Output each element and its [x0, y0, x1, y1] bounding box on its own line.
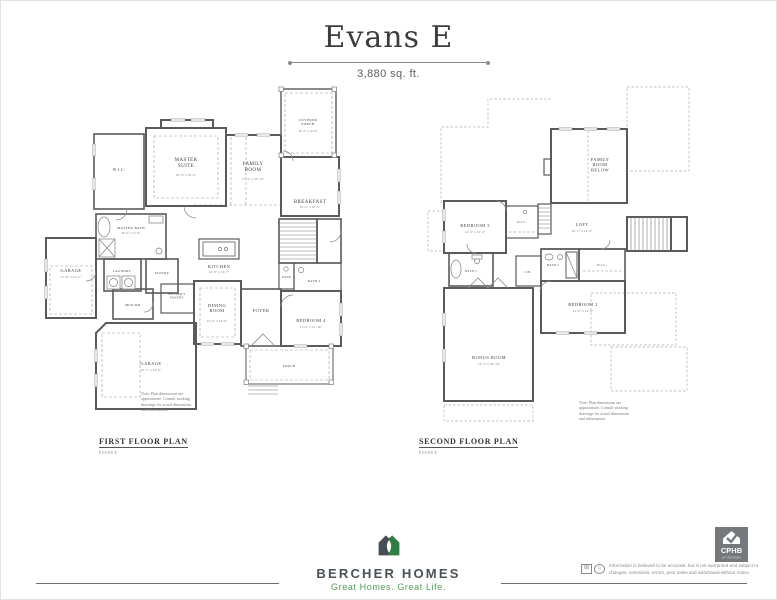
room-label-wic3: W.I.C.: [517, 221, 527, 224]
room-label-master-bath: MASTER BATH: [117, 226, 145, 230]
cphb-label: CPHB: [721, 546, 743, 555]
second-floor-caption: SECOND FLOOR PLAN EVANS E: [419, 431, 518, 455]
room-label-garage-rear: GARAGE: [140, 361, 161, 366]
equal-housing-icon: ⊞: [581, 564, 592, 574]
room-label-bath2: BATH 2: [547, 264, 559, 267]
room-label-bath4: BATH 4: [308, 279, 321, 283]
room-dims-bedroom3: 12'-4" x 12'-0": [465, 230, 486, 234]
cphb-sublabel: OF GEORGIA: [722, 556, 741, 560]
room-dims-bonus-room: 12'-7" x 20'-10": [478, 362, 501, 366]
disclaimer-text: Information is believed to be accurate, …: [609, 563, 767, 576]
second-floor-plan-drawing: FAMILYROOMBELOW BEDROOM 3 12'-4" x 12'-0…: [416, 81, 696, 429]
first-floor-caption-sub: EVANS E: [99, 450, 188, 455]
room-dims-master-suite: 16'-4" x 16'-0": [176, 173, 197, 177]
first-floor-plan-drawing: W.I.C. MASTERSUITE 16'-4" x 16'-0" FAMIL…: [39, 81, 351, 429]
room-label-bedroom2: BEDROOM 2: [568, 302, 597, 307]
room-label-wic: W.I.C.: [113, 167, 126, 172]
room-label-lin: LIN.: [525, 271, 532, 274]
builder-logo-block: BERCHER HOMES Great Homes. Great Life.: [1, 531, 776, 592]
realtor-house-icon: ⌂: [594, 564, 605, 574]
second-floor-walls: [444, 129, 687, 401]
room-label-kitchen: KITCHEN: [208, 264, 231, 269]
title-divider: [290, 62, 488, 63]
room-dims-garage-side: 21'-8" x 21'-2": [61, 275, 82, 279]
second-floor-caption-text: SECOND FLOOR PLAN: [419, 437, 518, 448]
room-label-dining-room: DININGROOM: [208, 303, 227, 313]
room-dims-garage-rear: 22'-7" x 24'-8": [141, 368, 162, 372]
room-dims-family-room: 17'-4" x 16'-10": [242, 177, 265, 181]
first-floor-caption-text: FIRST FLOOR PLAN: [99, 437, 188, 448]
room-label-garage-side: GARAGE: [60, 268, 81, 273]
first-floor-caption: FIRST FLOOR PLAN EVANS E: [99, 431, 188, 455]
room-label-pantry: PANTRY: [155, 271, 170, 275]
room-label-butlers-pantry: BUTLER'SPANTRY: [168, 292, 185, 299]
first-floor-walls: [46, 87, 341, 409]
room-dims-bedroom2: 12'-0" x 14'-2": [573, 309, 594, 313]
sheet-header: Evans E 3,880 sq. ft.: [1, 23, 776, 80]
room-label-foyer: FOYER: [253, 308, 270, 313]
room-label-family-room-below: FAMILYROOMBELOW: [591, 157, 610, 172]
room-label-master-suite: MASTERSUITE: [175, 158, 198, 169]
builder-tagline: Great Homes. Great Life.: [1, 582, 776, 592]
first-floor-note: Note: Plan dimensions are approximate. C…: [141, 391, 193, 413]
room-dims-master-bath: 16'-0" x 12'-6": [121, 232, 140, 235]
room-label-pwdr: PWDR: [282, 276, 291, 279]
room-dims-dining-room: 12'-0" x 13'-0": [207, 319, 228, 323]
room-label-mud-rm: MUD RM: [125, 303, 141, 307]
second-floor-doors-fixtures: [451, 201, 610, 292]
room-dims-covered-porch: 16'-2" x 10'-0": [298, 130, 317, 133]
room-dims-breakfast: 10'-2" x 10'-0": [300, 205, 321, 209]
bercher-house-icon: [373, 531, 405, 559]
room-label-bath3: BATH 3: [465, 270, 477, 273]
room-label-porch: PORCH: [283, 364, 296, 368]
cphb-badge: CPHB OF GEORGIA: [715, 527, 748, 567]
room-label-bedroom4: BEDROOM 4: [296, 318, 326, 323]
legal-block: ⊞ ⌂ Information is believed to be accura…: [581, 563, 767, 576]
second-floor-caption-sub: EVANS E: [419, 450, 518, 455]
plan-title: Evans E: [1, 23, 776, 53]
room-dims-loft: 16'-7" x 14'-4": [572, 229, 593, 233]
room-label-bedroom3: BEDROOM 3: [460, 223, 490, 228]
second-floor-note: Note: Plan dimensions are approximate. C…: [579, 400, 631, 422]
room-label-laundry: LAUNDRY: [113, 269, 132, 273]
legal-icons: ⊞ ⌂: [581, 564, 605, 574]
room-label-family-room: FAMILYROOM: [243, 162, 264, 173]
room-dims-kitchen: 12'-8" x 13'-7": [209, 270, 230, 274]
room-label-loft: LOFT: [576, 222, 589, 227]
square-footage: 3,880 sq. ft.: [1, 68, 776, 80]
room-label-bonus-room: BONUS ROOM: [472, 355, 506, 360]
room-dims-bedroom4: 11'-4" x 12'-10": [300, 325, 323, 329]
plan-sheet: Evans E 3,880 sq. ft.: [0, 0, 777, 600]
room-label-covered-porch: COVEREDPORCH: [299, 118, 318, 126]
room-label-wic2: W.I.C.: [597, 264, 607, 267]
